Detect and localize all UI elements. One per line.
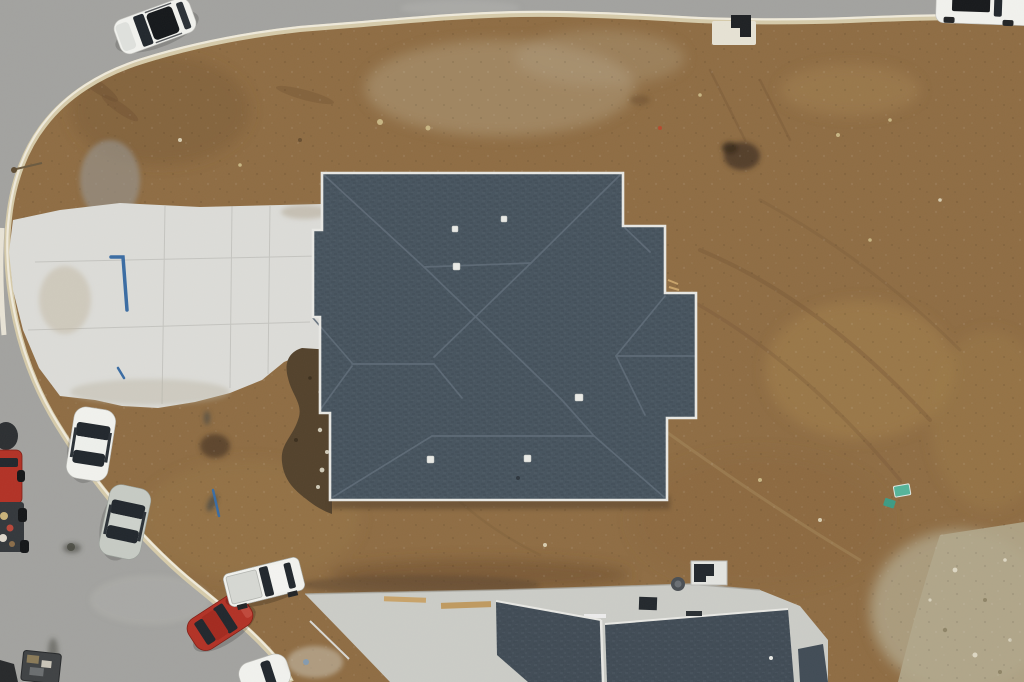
aerial-photo-stage [0, 0, 1024, 682]
aerial-construction-site-photo [0, 0, 1024, 682]
photo-grain-overlay [0, 0, 1024, 682]
